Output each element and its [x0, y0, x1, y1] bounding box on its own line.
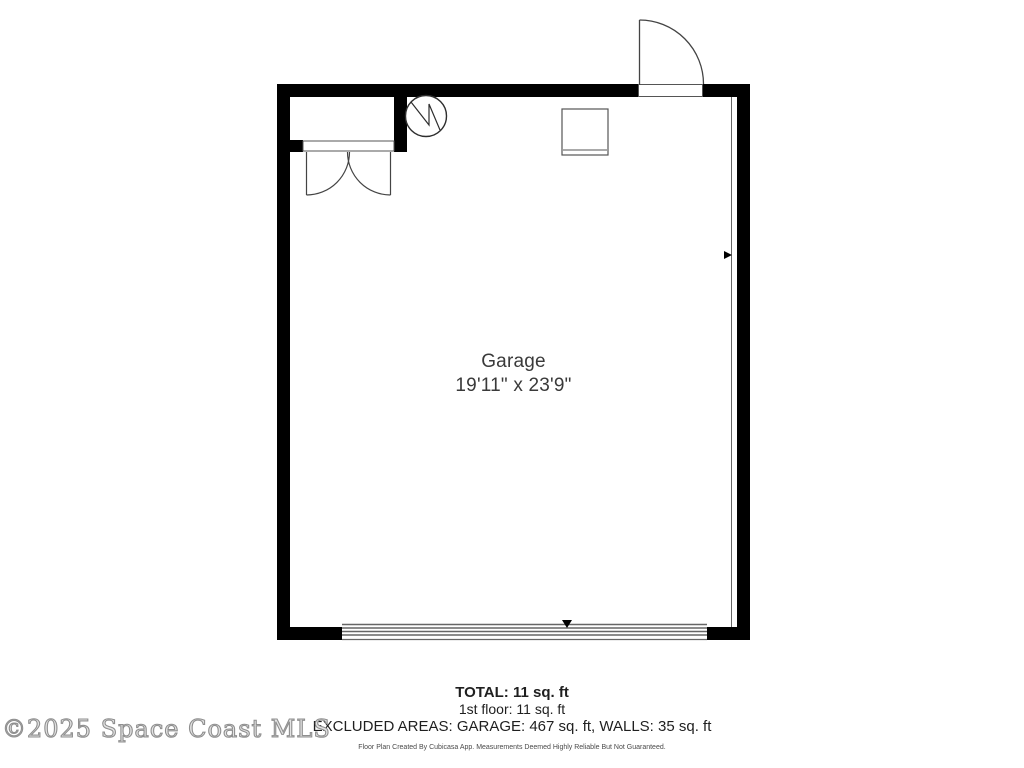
room-label: Garage 19'11" x 23'9"	[277, 350, 750, 398]
appliance-icon	[562, 109, 608, 155]
wall-top-left-segment	[277, 84, 638, 97]
summary-total: TOTAL: 11 sq. ft	[0, 684, 1024, 701]
measure-arrow-right-icon	[724, 251, 732, 259]
closet-door-right-swing-arc	[348, 152, 391, 195]
wall-bottom-right-segment	[707, 627, 750, 640]
mls-watermark: ©2025 Space Coast MLS	[2, 715, 331, 743]
closet-door-left-swing-arc	[307, 152, 350, 195]
wall-bottom-left-segment	[277, 627, 342, 640]
water-heater-icon	[406, 96, 447, 137]
summary-disclaimer: Floor Plan Created By Cubicasa App. Meas…	[0, 743, 1024, 752]
appliance-outline	[562, 109, 608, 155]
closet-double-door	[307, 152, 391, 195]
room-name: Garage	[277, 350, 750, 374]
entry-door-threshold	[639, 85, 703, 97]
entry-door	[639, 20, 704, 97]
garage-door	[342, 622, 707, 642]
entry-door-swing-arc	[640, 20, 704, 84]
water-heater-circle	[406, 96, 447, 137]
room-dimensions: 19'11" x 23'9"	[277, 374, 750, 398]
closet-bottom-wall-segment	[288, 140, 303, 152]
closet-door-threshold	[303, 141, 394, 151]
floor-plan-page: Garage 19'11" x 23'9" TOTAL: 11 sq. ft 1…	[0, 0, 1024, 768]
